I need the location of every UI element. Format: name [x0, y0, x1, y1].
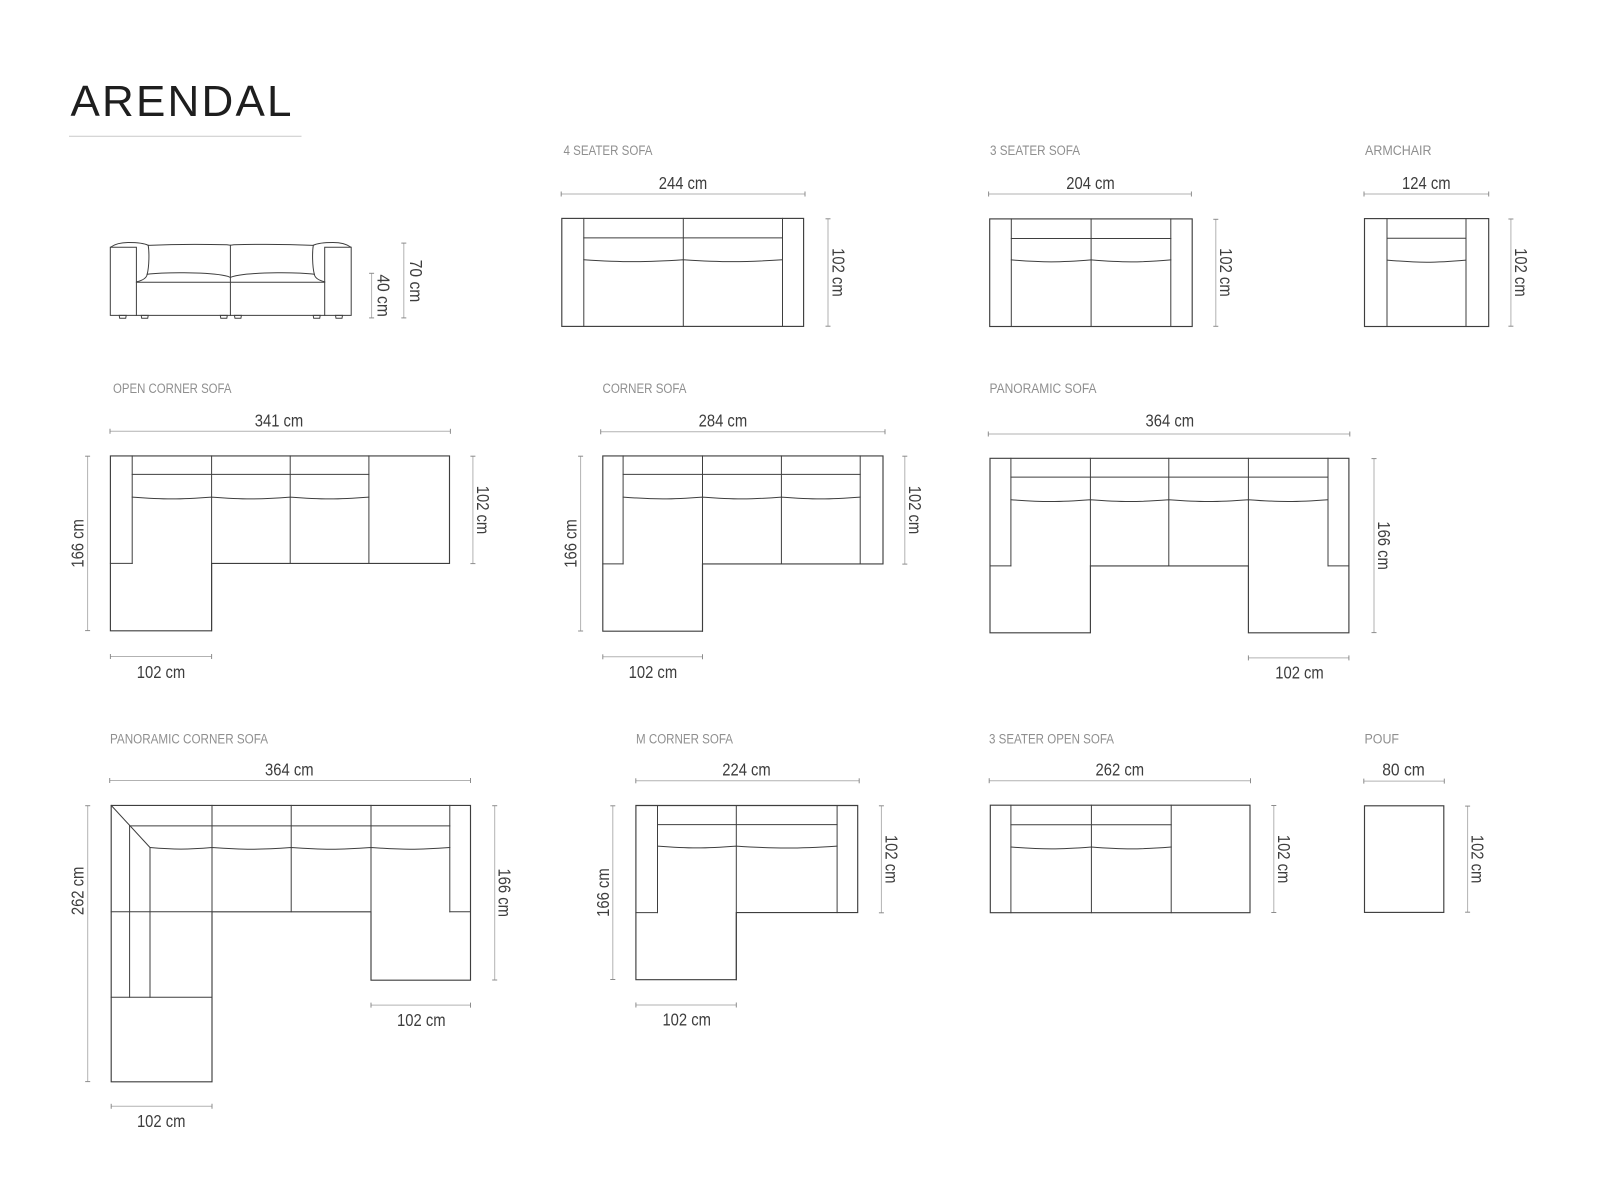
svg-text:166 cm: 166 cm — [68, 519, 88, 568]
svg-text:3 SEATER SOFA: 3 SEATER SOFA — [990, 143, 1080, 158]
svg-text:244 cm: 244 cm — [659, 173, 708, 193]
svg-text:262 cm: 262 cm — [1096, 760, 1145, 780]
svg-text:102 cm: 102 cm — [905, 486, 925, 535]
svg-text:102 cm: 102 cm — [1275, 663, 1324, 683]
svg-text:102 cm: 102 cm — [1216, 248, 1236, 297]
svg-text:364 cm: 364 cm — [265, 760, 314, 780]
svg-text:102 cm: 102 cm — [881, 835, 901, 884]
svg-text:102 cm: 102 cm — [662, 1010, 711, 1030]
svg-text:4 SEATER SOFA: 4 SEATER SOFA — [564, 143, 653, 158]
svg-text:102 cm: 102 cm — [1511, 248, 1531, 297]
svg-text:M CORNER SOFA: M CORNER SOFA — [636, 732, 733, 747]
svg-text:166 cm: 166 cm — [561, 519, 581, 568]
svg-text:CORNER SOFA: CORNER SOFA — [603, 381, 687, 396]
svg-text:102 cm: 102 cm — [1274, 835, 1294, 884]
svg-text:166 cm: 166 cm — [1374, 521, 1394, 570]
svg-text:102 cm: 102 cm — [137, 1111, 186, 1131]
svg-text:OPEN CORNER SOFA: OPEN CORNER SOFA — [113, 381, 232, 396]
svg-text:102 cm: 102 cm — [828, 248, 848, 297]
svg-text:124 cm: 124 cm — [1402, 173, 1451, 193]
svg-text:POUF: POUF — [1365, 732, 1400, 747]
svg-text:3 SEATER OPEN SOFA: 3 SEATER OPEN SOFA — [989, 732, 1114, 747]
svg-text:ARMCHAIR: ARMCHAIR — [1365, 143, 1432, 158]
svg-text:224 cm: 224 cm — [722, 760, 771, 780]
svg-text:284 cm: 284 cm — [699, 411, 748, 431]
svg-text:40 cm: 40 cm — [373, 274, 393, 317]
svg-text:166 cm: 166 cm — [593, 868, 613, 917]
svg-text:102 cm: 102 cm — [137, 662, 186, 682]
svg-text:ARENDAL: ARENDAL — [71, 77, 292, 126]
svg-text:102 cm: 102 cm — [397, 1010, 446, 1030]
svg-text:PANORAMIC SOFA: PANORAMIC SOFA — [990, 381, 1097, 396]
svg-text:166 cm: 166 cm — [495, 868, 515, 917]
svg-text:102 cm: 102 cm — [629, 662, 678, 682]
svg-text:102 cm: 102 cm — [473, 486, 493, 535]
svg-text:364 cm: 364 cm — [1146, 411, 1195, 431]
svg-text:262 cm: 262 cm — [68, 867, 88, 916]
svg-text:80 cm: 80 cm — [1382, 760, 1425, 780]
svg-text:204 cm: 204 cm — [1066, 173, 1115, 193]
svg-text:102 cm: 102 cm — [1468, 835, 1488, 884]
svg-text:341 cm: 341 cm — [255, 411, 304, 431]
svg-text:70 cm: 70 cm — [406, 260, 426, 303]
svg-text:PANORAMIC CORNER SOFA: PANORAMIC CORNER SOFA — [110, 732, 268, 747]
